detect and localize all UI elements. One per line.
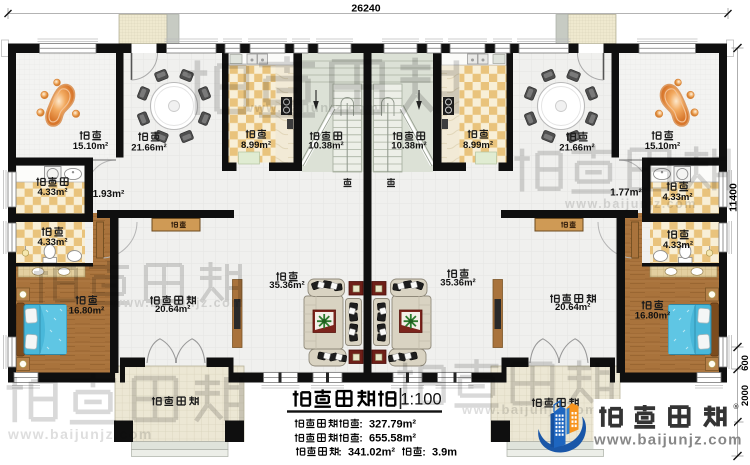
svg-text:10.38m²: 10.38m² <box>308 140 343 151</box>
svg-text:11400: 11400 <box>728 183 740 212</box>
svg-text:35.36m²: 35.36m² <box>440 277 475 288</box>
svg-text::: : <box>359 434 362 445</box>
svg-text:20.64m²: 20.64m² <box>555 302 590 313</box>
svg-text:www.baijunjz.com: www.baijunjz.com <box>593 432 743 449</box>
svg-text:26240: 26240 <box>351 3 380 15</box>
svg-text:8.99m²: 8.99m² <box>241 140 271 151</box>
svg-text:4.33m²: 4.33m² <box>663 240 693 251</box>
svg-text:35.36m²: 35.36m² <box>269 280 304 291</box>
svg-text:®: ® <box>733 403 739 411</box>
svg-text:3.9m: 3.9m <box>432 446 457 458</box>
svg-text:327.79m²: 327.79m² <box>369 418 416 430</box>
svg-text:16.80m²: 16.80m² <box>635 311 670 322</box>
svg-text::: : <box>359 419 362 430</box>
svg-text:1.93m²: 1.93m² <box>93 189 125 200</box>
svg-text:655.58m²: 655.58m² <box>369 433 416 445</box>
svg-text:www.baijunjz.com: www.baijunjz.com <box>7 426 153 442</box>
svg-text:8.99m²: 8.99m² <box>463 140 493 151</box>
svg-text:20.64m²: 20.64m² <box>155 304 190 315</box>
svg-text:4.33m²: 4.33m² <box>37 187 67 198</box>
svg-text:1:100: 1:100 <box>400 391 441 409</box>
svg-text:21.66m²: 21.66m² <box>131 143 166 154</box>
svg-text:4.33m²: 4.33m² <box>37 237 67 248</box>
svg-text:341.02m²: 341.02m² <box>348 446 395 458</box>
svg-text:16.80m²: 16.80m² <box>69 306 104 317</box>
svg-text:21.66m²: 21.66m² <box>559 143 594 154</box>
svg-text:4.33m²: 4.33m² <box>662 192 692 203</box>
svg-text:2000: 2000 <box>740 385 750 406</box>
svg-text:10.38m²: 10.38m² <box>391 140 426 151</box>
svg-text::: : <box>422 447 425 458</box>
svg-text:www.baijunjz.com: www.baijunjz.com <box>242 100 379 115</box>
svg-text::: : <box>338 447 341 458</box>
svg-text:1.77m²: 1.77m² <box>610 188 642 199</box>
svg-text:15.10m²: 15.10m² <box>73 141 108 152</box>
svg-text:600: 600 <box>740 355 750 371</box>
svg-text:15.10m²: 15.10m² <box>645 141 680 152</box>
